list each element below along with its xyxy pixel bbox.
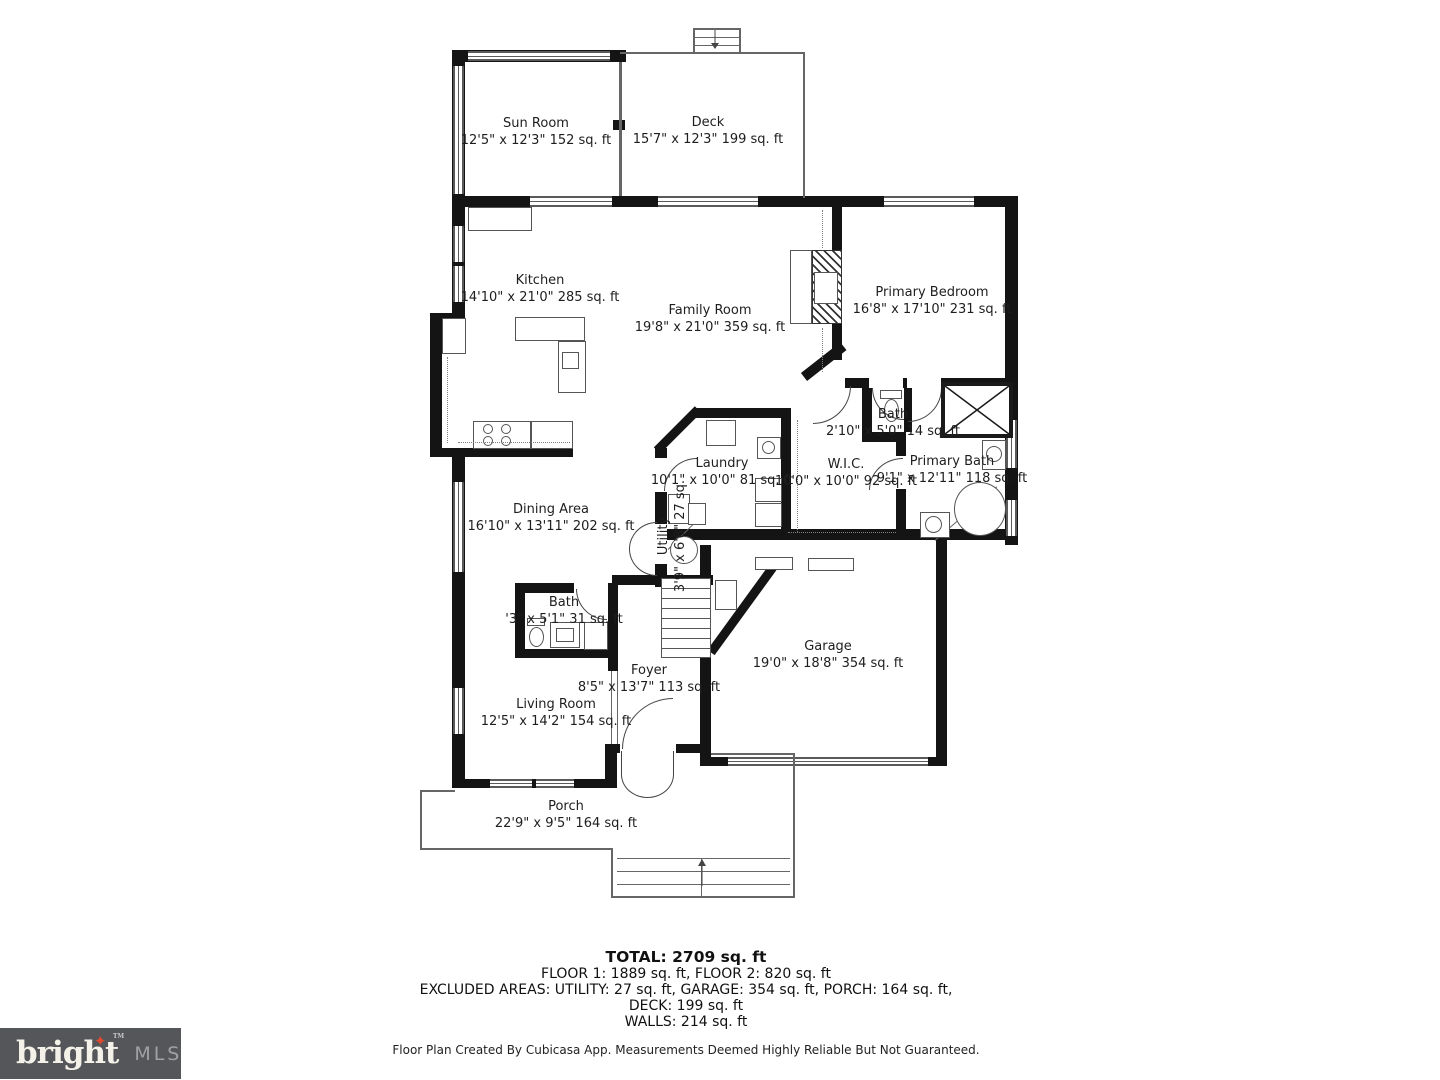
- window: [530, 196, 612, 207]
- fixture-circle: [762, 441, 775, 454]
- wall: [1005, 196, 1018, 545]
- floorplan-line: [420, 848, 613, 850]
- room-label-deck: Deck 15'7" x 12'3" 199 sq. ft: [633, 115, 784, 149]
- logo-suffix-text: MLS: [134, 1043, 182, 1065]
- room-dims: 3'9" x 6'8" 27 sq.: [673, 480, 690, 592]
- fixture-circle: [954, 482, 1006, 536]
- fixture: [715, 580, 737, 610]
- room-dims: 15'7" x 12'3" 199 sq. ft: [633, 132, 784, 149]
- fixture: [468, 207, 532, 231]
- window: [468, 51, 610, 61]
- room-dims: 16'10" x 13'11" 202 sq. ft: [467, 519, 634, 536]
- fixture-circle: [501, 424, 511, 434]
- door-swing-arc: [621, 751, 674, 798]
- summary-total: TOTAL: 2709 sq. ft: [0, 949, 1372, 966]
- star-icon: ✦: [94, 1034, 107, 1049]
- room-label-foyer: Foyer 8'5" x 13'7" 113 sq. ft: [578, 663, 720, 697]
- fixture-circle: [925, 516, 942, 533]
- room-name: Deck: [633, 115, 784, 132]
- fixture: [442, 318, 466, 354]
- room-label-bath-small: Bath 2'10" x 5'0" 14 sq. ft: [826, 407, 960, 441]
- fixture: [531, 421, 573, 449]
- room-dims: 14'10" x 21'0" 285 sq. ft: [461, 290, 620, 307]
- room-dims: 22'9" x 9'5" 164 sq. ft: [495, 816, 637, 833]
- room-name: Primary Bedroom: [853, 285, 1012, 302]
- fixture-circle: [501, 436, 511, 446]
- floorplan-line: [611, 896, 795, 898]
- fixture: [688, 503, 706, 525]
- fixture: [556, 628, 574, 642]
- room-label-living-room: Living Room 12'5" x 14'2" 154 sq. ft: [481, 697, 632, 731]
- room-dims: 19'0" x 18'8" 354 sq. ft: [753, 656, 904, 673]
- door-opening: [907, 378, 941, 388]
- fixture-circle: [483, 436, 493, 446]
- window: [453, 482, 464, 572]
- room-label-dining-area: Dining Area 16'10" x 13'11" 202 sq. ft: [467, 502, 634, 536]
- floorplan-line: [711, 753, 795, 755]
- fixture: [814, 272, 838, 304]
- room-label-garage: Garage 19'0" x 18'8" 354 sq. ft: [753, 639, 904, 673]
- room-label-bath-main: Bath '3" x 5'1" 31 sq. ft: [505, 595, 622, 629]
- room-name: Foyer: [578, 663, 720, 680]
- wall: [452, 779, 617, 788]
- room-label-primary-bedroom: Primary Bedroom 16'8" x 17'10" 231 sq. f…: [853, 285, 1012, 319]
- summary-walls: WALLS: 214 sq. ft: [0, 1014, 1372, 1030]
- door-opening: [869, 378, 903, 388]
- wall: [903, 378, 907, 388]
- room-name: Porch: [495, 799, 637, 816]
- room-name: Garage: [753, 639, 904, 656]
- room-dims: 9'1" x 12'11" 118 sq. ft: [877, 471, 1028, 488]
- room-label-sun-room: Sun Room 12'5" x 12'3" 152 sq. ft: [461, 116, 612, 150]
- floorplan-line: [620, 52, 805, 54]
- area-summary: TOTAL: 2709 sq. ft FLOOR 1: 1889 sq. ft,…: [0, 949, 1372, 1030]
- fixture: [515, 317, 585, 341]
- bright-mls-logo: bright ✦ TM MLS: [0, 1028, 181, 1079]
- dashed-guide: [822, 210, 823, 248]
- room-dims: 19'8" x 21'0" 359 sq. ft: [635, 320, 786, 337]
- room-dims: 16'8" x 17'10" 231 sq. ft: [853, 302, 1012, 319]
- dashed-guide: [447, 357, 448, 443]
- room-dims: 12'5" x 14'2" 154 sq. ft: [481, 714, 632, 731]
- window: [536, 779, 574, 788]
- room-name: Bath: [826, 407, 960, 424]
- room-label-primary-bath: Primary Bath 9'1" x 12'11" 118 sq. ft: [877, 454, 1028, 488]
- room-dims: 8'5" x 13'7" 113 sq. ft: [578, 680, 720, 697]
- summary-floors: FLOOR 1: 1889 sq. ft, FLOOR 2: 820 sq. f…: [0, 966, 1372, 982]
- window: [1006, 500, 1017, 536]
- room-name: Primary Bath: [877, 454, 1028, 471]
- wall: [695, 408, 791, 418]
- fixture: [562, 352, 579, 369]
- logo-brand-text: bright ✦ TM: [16, 1038, 118, 1069]
- room-dims: '3" x 5'1" 31 sq. ft: [505, 612, 622, 629]
- wall: [832, 196, 842, 256]
- room-name: Utility: [656, 480, 673, 592]
- room-label-porch: Porch 22'9" x 9'5" 164 sq. ft: [495, 799, 637, 833]
- room-name: Sun Room: [461, 116, 612, 133]
- room-label-utility: Utility 3'9" x 6'8" 27 sq.: [656, 480, 690, 592]
- fixture: [808, 558, 854, 571]
- floorplan-line: [693, 28, 695, 54]
- fixture: [755, 503, 782, 527]
- wall: [936, 540, 947, 766]
- disclaimer-text: Floor Plan Created By Cubicasa App. Meas…: [0, 1043, 1372, 1057]
- fixture: [755, 557, 793, 570]
- room-name: Family Room: [635, 303, 786, 320]
- deck-stairs-arrow-icon: [708, 30, 722, 50]
- floorplan-line: [793, 753, 795, 898]
- fixture-circle: [529, 627, 544, 647]
- window: [728, 757, 928, 766]
- window: [453, 226, 464, 262]
- dashed-guide: [788, 532, 896, 533]
- summary-deck: DECK: 199 sq. ft: [0, 998, 1372, 1014]
- room-name: Bath: [505, 595, 622, 612]
- wall: [430, 313, 442, 457]
- floorplan-line: [420, 790, 455, 792]
- floorplan-line: [803, 52, 805, 198]
- room-name: Living Room: [481, 697, 632, 714]
- fixture-circle: [483, 424, 493, 434]
- wall: [515, 649, 618, 658]
- room-dims: 12'5" x 12'3" 152 sq. ft: [461, 133, 612, 150]
- room-name: Dining Area: [467, 502, 634, 519]
- trademark-text: TM: [113, 1034, 124, 1040]
- room-label-family-room: Family Room 19'8" x 21'0" 359 sq. ft: [635, 303, 786, 337]
- dashed-guide: [822, 328, 823, 372]
- room-label-kitchen: Kitchen 14'10" x 21'0" 285 sq. ft: [461, 273, 620, 307]
- window: [884, 196, 974, 207]
- floorplan-line: [420, 790, 422, 850]
- fixture: [790, 250, 812, 324]
- porch-stairs-arrow-icon: [695, 858, 709, 888]
- window: [453, 688, 464, 734]
- fixture: [706, 420, 736, 446]
- floor-plan-canvas: Sun Room 12'5" x 12'3" 152 sq. ft Deck 1…: [0, 0, 1440, 1080]
- floorplan-line: [611, 848, 613, 898]
- room-name: Laundry: [651, 456, 793, 473]
- floorplan-line: [619, 62, 622, 196]
- wall: [801, 342, 847, 381]
- room-name: Kitchen: [461, 273, 620, 290]
- dashed-guide: [458, 442, 570, 443]
- wall: [654, 406, 701, 453]
- window: [490, 779, 532, 788]
- room-dims: 2'10" x 5'0" 14 sq. ft: [826, 424, 960, 441]
- summary-excluded: EXCLUDED AREAS: UTILITY: 27 sq. ft, GARA…: [0, 982, 1372, 998]
- window: [658, 196, 758, 207]
- floorplan-line: [739, 28, 741, 54]
